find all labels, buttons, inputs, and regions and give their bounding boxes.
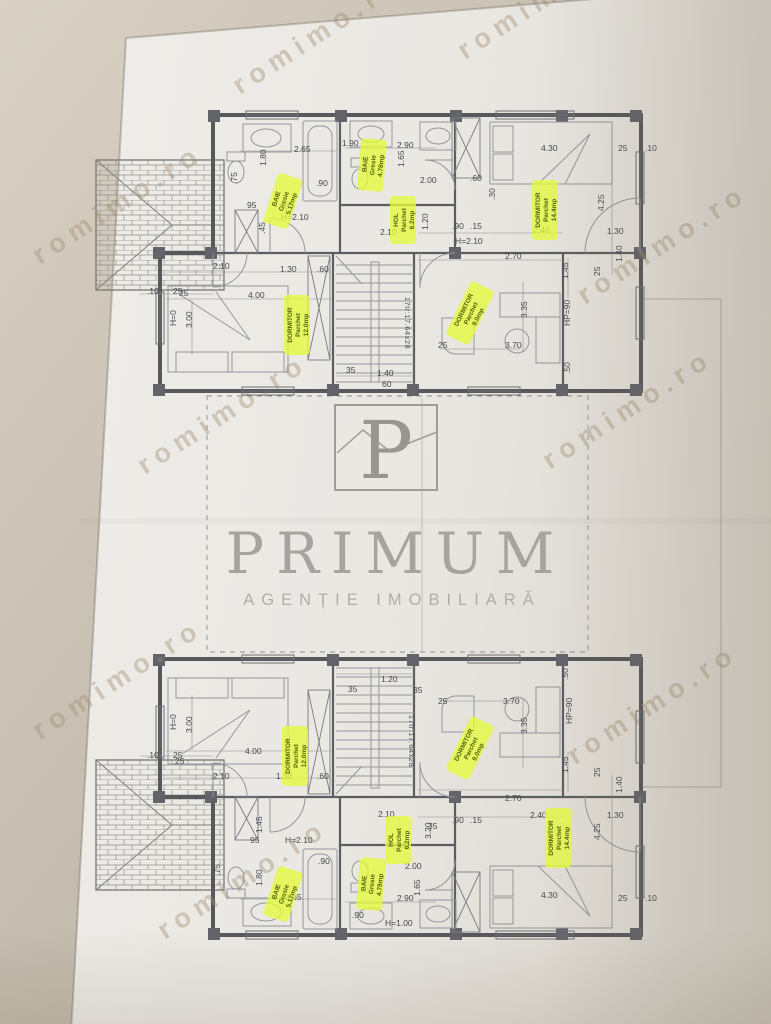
dimension-label: .75 <box>229 172 239 184</box>
dimension-label: .10 <box>147 286 159 296</box>
dimension-label: 3.70 <box>503 696 520 706</box>
dimension-label: 2.10 <box>213 261 230 271</box>
room-label-dormitor: DORMITORParchet12.0mp <box>284 295 310 355</box>
dimension-label: 1.40 <box>377 368 394 378</box>
dimension-label: 3.35 <box>519 717 529 734</box>
room-label-baie: BAIEGresie4.78mp <box>357 138 387 192</box>
dimension-label: 3.00 <box>184 311 194 328</box>
dimension-label: H=2.10 <box>455 236 483 246</box>
dimension-label: 1.20 <box>420 213 430 230</box>
dimension-label: 2.10 <box>213 771 230 781</box>
dimension-label: 2.00 <box>420 175 437 185</box>
photo-shadow-right <box>540 0 771 1024</box>
dimension-label: 25 <box>438 696 448 706</box>
dimension-label: .90 <box>318 856 330 866</box>
stairs-dimension-label: 17tr:17.64x28 <box>407 715 416 767</box>
dimension-label: 35 <box>346 365 356 375</box>
logo-tagline: AGENȚIE IMOBILIARĂ <box>243 590 540 609</box>
dimension-label: 2.70 <box>505 251 522 261</box>
svg-text:Parchet: Parchet <box>401 207 408 232</box>
svg-text:Parchet: Parchet <box>293 743 300 768</box>
dimension-label: 35 <box>413 685 423 695</box>
room-label-hol: HOLParchet6.2mp <box>385 816 411 864</box>
dimension-label: 60 <box>382 379 392 389</box>
floor-plan-drawing: P PRIMUM AGENȚIE IMOBILIARĂ 2.65 1.90 2.… <box>0 0 771 1024</box>
dimension-label: 1.45 <box>254 816 264 833</box>
dimension-label: .60 <box>470 173 482 183</box>
room-label-baie: BAIEGresie4.78mp <box>356 857 386 911</box>
dimension-label: 1.20 <box>381 674 398 684</box>
dimension-label: 1.30 <box>280 264 297 274</box>
dimension-label: 35 <box>428 821 438 831</box>
svg-text:Parchet: Parchet <box>295 312 302 337</box>
dimension-label: 95 <box>250 835 260 845</box>
svg-text:12.0mp: 12.0mp <box>301 745 308 767</box>
dimension-label: .90 <box>452 221 464 231</box>
svg-text:6.2mp: 6.2mp <box>404 831 411 850</box>
dimension-label: 25 <box>438 340 448 350</box>
svg-text:12.0mp: 12.0mp <box>303 314 310 336</box>
dimension-label: .45 <box>257 222 267 234</box>
dimension-label: 3.35 <box>519 301 529 318</box>
svg-text:BAIE: BAIE <box>360 875 368 892</box>
dimension-label: .10 <box>147 750 159 760</box>
dimension-label: .90 <box>452 815 464 825</box>
dimension-label: .90 <box>316 178 328 188</box>
dimension-label: .90 <box>352 910 364 920</box>
dimension-label: .15 <box>470 815 482 825</box>
dimension-label: 1.80 <box>258 149 268 166</box>
dimension-label: 1.65 <box>412 879 422 896</box>
dimension-label: H=0 <box>168 714 178 730</box>
svg-text:DORMITOR: DORMITOR <box>285 738 292 774</box>
dimension-label: 35 <box>348 684 358 694</box>
dimension-label: .30 <box>487 188 497 200</box>
dimension-label: 4.00 <box>248 290 265 300</box>
svg-text:DORMITOR: DORMITOR <box>287 307 294 343</box>
dimension-label: .60 <box>317 771 329 781</box>
dimension-label: 2.90 <box>397 140 414 150</box>
dimension-label: 25 <box>173 750 183 760</box>
dimension-label: 25 <box>173 286 183 296</box>
dimension-label: 95 <box>247 200 257 210</box>
dimension-label: 2.70 <box>505 793 522 803</box>
dimension-label: 2.65 <box>294 144 311 154</box>
dimension-label: 4.00 <box>245 746 262 756</box>
stairs-dimension-label: 17tr:17.64x28 <box>403 297 412 349</box>
svg-text:6.2mp: 6.2mp <box>409 211 416 230</box>
dimension-label: 3.00 <box>184 716 194 733</box>
dimension-label: H=0 <box>168 310 178 326</box>
dimension-label: .60 <box>317 264 329 274</box>
floor-plan-photo: P PRIMUM AGENȚIE IMOBILIARĂ 2.65 1.90 2.… <box>0 0 771 1024</box>
room-label-dormitor: DORMITORParchet12.0mp <box>282 726 308 786</box>
logo-name: PRIMUM <box>226 521 567 587</box>
logo-letter: P <box>359 404 413 497</box>
svg-text:BAIE: BAIE <box>361 156 369 173</box>
dimension-label: 1.90 <box>342 138 359 148</box>
svg-text:HOL: HOL <box>393 213 400 227</box>
dimension-label: 3.70 <box>505 340 522 350</box>
svg-text:Parchet: Parchet <box>396 827 403 852</box>
dimension-label: 1.65 <box>396 150 406 167</box>
room-label-hol: HOLParchet6.2mp <box>390 196 416 244</box>
svg-text:HOL: HOL <box>388 833 395 847</box>
photo-shadow-bottom <box>0 930 771 1024</box>
dimension-label: H=1.00 <box>385 918 413 928</box>
dimension-label: .15 <box>470 221 482 231</box>
